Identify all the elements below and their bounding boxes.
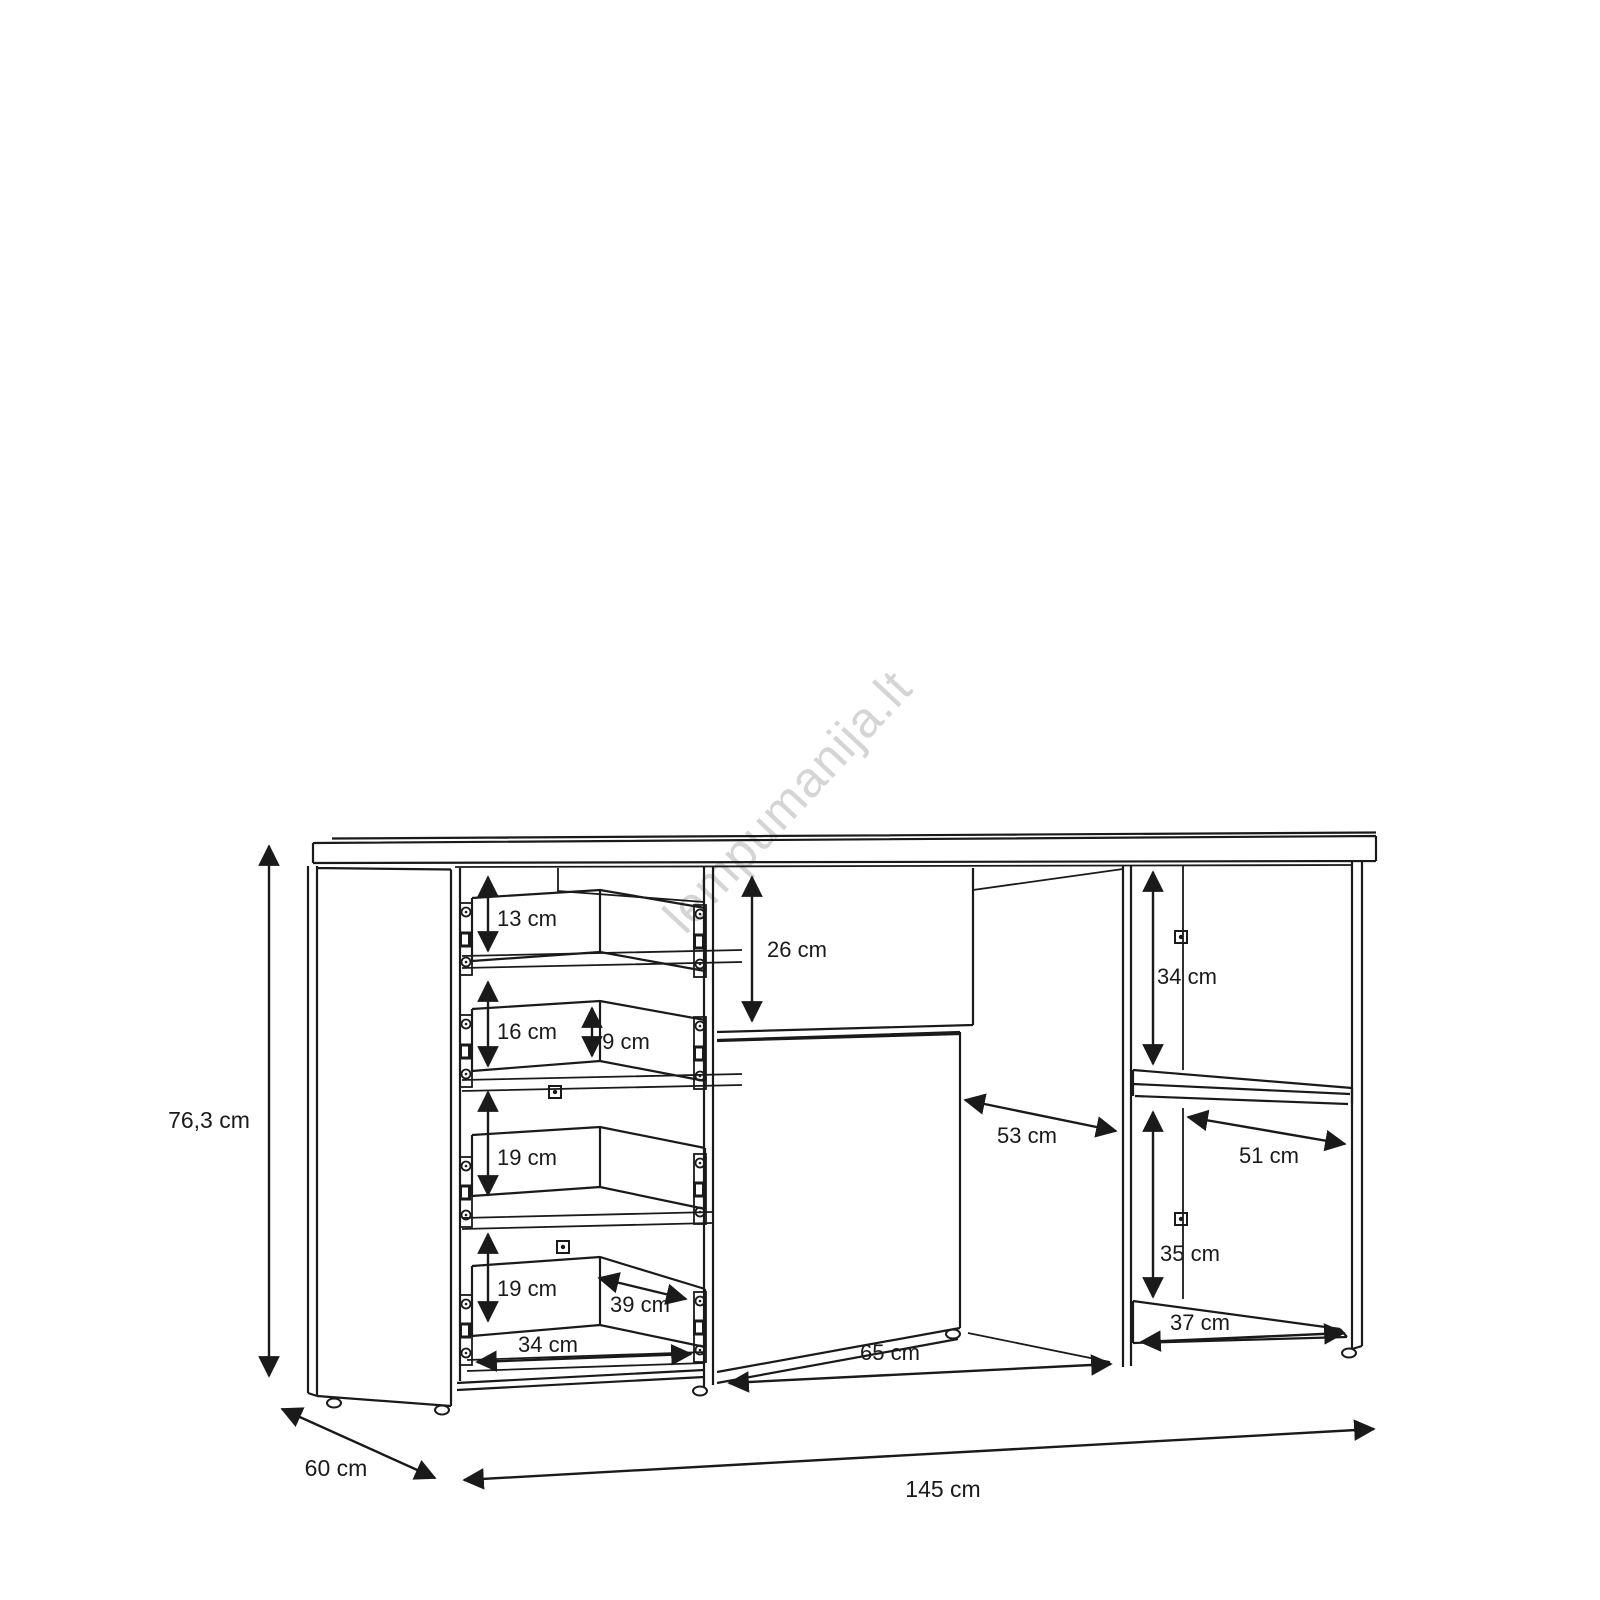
dimension-shelf-upper-height: 34 cm — [1153, 872, 1217, 1064]
dim-label-total-height: 76,3 cm — [168, 1107, 250, 1133]
dimension-shelf-inner-depth: 51 cm — [1188, 1117, 1345, 1168]
dimension-total-height: 76,3 cm — [168, 846, 269, 1376]
dim-label-shelf-lower-height: 35 cm — [1160, 1241, 1220, 1266]
dim-label-top-drawer-height: 26 cm — [767, 937, 827, 962]
dim-label-interior-depth: 53 cm — [997, 1123, 1057, 1148]
dim-label-shelf-upper-height: 34 cm — [1157, 964, 1217, 989]
dim-label-drawer-1-height: 13 cm — [497, 906, 557, 931]
dimension-total-width: 145 cm — [464, 1429, 1374, 1502]
right-side-panel — [1342, 862, 1362, 1358]
dimension-drawer-1-height: 13 cm — [488, 877, 557, 951]
foot-left-door-right — [435, 1406, 449, 1415]
foot-right-side — [1342, 1349, 1356, 1358]
dimension-drawer-3-height: 19 cm — [488, 1092, 557, 1195]
middle-door-panel — [717, 1032, 1110, 1383]
dim-label-middle-section-width: 65 cm — [860, 1340, 920, 1365]
left-door-panel — [308, 866, 460, 1415]
dimension-interior-depth: 53 cm — [965, 1100, 1116, 1148]
dim-label-drawer-2-inner-height: 9 cm — [602, 1029, 650, 1054]
dimension-drawer-2-height: 16 cm — [488, 982, 557, 1066]
middle-shelf — [1133, 1070, 1352, 1104]
dimension-drawer-inner-depth: 39 cm — [599, 1278, 686, 1317]
drawer-2 — [460, 1001, 742, 1091]
dim-label-shelf-inner-depth: 51 cm — [1239, 1143, 1299, 1168]
dim-label-shelf-inner-width: 37 cm — [1170, 1310, 1230, 1335]
foot-drawer-column — [693, 1387, 707, 1396]
dimension-total-depth: 60 cm — [282, 1409, 435, 1481]
dim-label-drawer-inner-depth: 39 cm — [610, 1292, 670, 1317]
dim-label-drawer-3-height: 19 cm — [497, 1145, 557, 1170]
dimension-diagram-svg: lempumanija.lt — [0, 0, 1600, 1600]
drawer-column — [457, 867, 713, 1396]
dimension-drawer-4-height: 19 cm — [488, 1234, 557, 1321]
dim-label-drawer-inner-width: 34 cm — [518, 1332, 578, 1357]
dim-label-total-width: 145 cm — [905, 1476, 980, 1502]
dim-label-drawer-2-height: 16 cm — [497, 1019, 557, 1044]
right-divider-panel — [1123, 866, 1131, 1367]
furniture-dimension-diagram-page: lempumanija.lt — [0, 0, 1600, 1600]
dim-label-total-depth: 60 cm — [305, 1455, 368, 1481]
right-shelf-compartment — [1133, 862, 1362, 1358]
drawer-3 — [460, 1127, 712, 1229]
dimension-top-drawer-height: 26 cm — [752, 877, 827, 1021]
dimension-annotations: 13 cm 16 cm 9 cm 19 cm 19 cm 39 cm 34 cm — [168, 846, 1374, 1502]
foot-middle-door — [946, 1330, 960, 1339]
top-panel — [313, 833, 1376, 868]
dim-label-drawer-4-height: 19 cm — [497, 1276, 557, 1301]
foot-left-door — [327, 1399, 341, 1408]
dimension-shelf-lower-height: 35 cm — [1153, 1112, 1220, 1297]
